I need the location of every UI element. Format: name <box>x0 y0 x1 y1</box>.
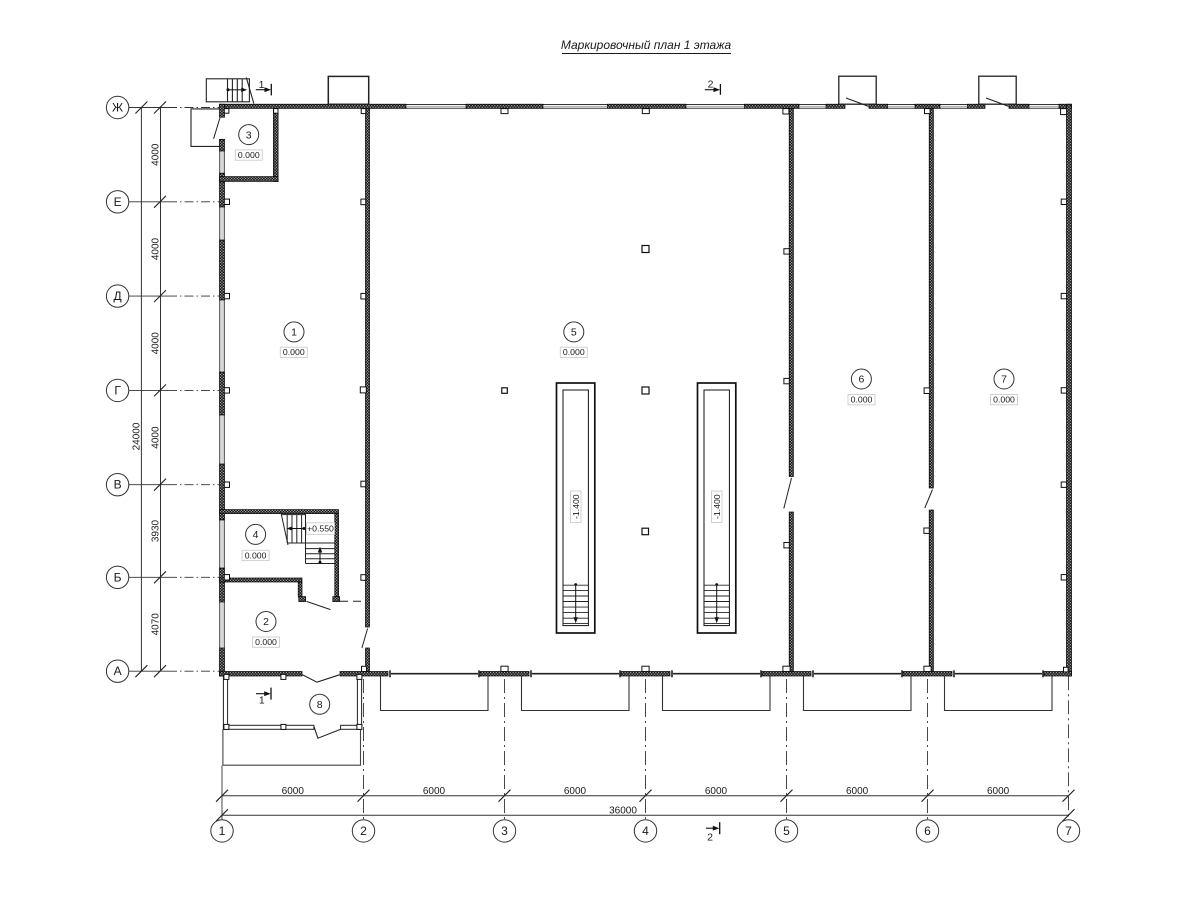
svg-text:А: А <box>114 664 122 678</box>
svg-text:0.000: 0.000 <box>283 347 305 357</box>
svg-text:2: 2 <box>360 824 367 838</box>
svg-text:0.000: 0.000 <box>993 395 1015 405</box>
svg-text:4000: 4000 <box>151 143 162 166</box>
svg-text:4000: 4000 <box>151 332 162 355</box>
svg-text:6000: 6000 <box>846 786 869 797</box>
svg-text:6000: 6000 <box>423 786 446 797</box>
svg-text:4000: 4000 <box>150 426 161 449</box>
svg-text:0.000: 0.000 <box>245 550 267 560</box>
svg-text:2: 2 <box>263 616 269 628</box>
svg-text:3: 3 <box>246 129 252 141</box>
svg-text:0.000: 0.000 <box>255 637 277 647</box>
svg-text:Ж: Ж <box>112 101 123 115</box>
svg-text:24000: 24000 <box>132 422 143 450</box>
svg-text:+0.550: +0.550 <box>307 524 334 534</box>
svg-text:3: 3 <box>501 824 508 838</box>
svg-text:3930: 3930 <box>151 519 162 542</box>
svg-text:Б: Б <box>114 570 122 584</box>
svg-text:1: 1 <box>291 327 297 339</box>
svg-text:2: 2 <box>708 78 714 90</box>
svg-text:6000: 6000 <box>705 786 728 797</box>
svg-text:4: 4 <box>642 824 649 838</box>
svg-text:4: 4 <box>253 529 259 541</box>
svg-text:7: 7 <box>1065 824 1072 838</box>
svg-text:8: 8 <box>317 699 323 711</box>
svg-text:4000: 4000 <box>151 237 162 260</box>
svg-text:5: 5 <box>783 824 790 838</box>
svg-text:7: 7 <box>1001 374 1007 386</box>
svg-text:6: 6 <box>924 824 931 838</box>
svg-text:6000: 6000 <box>987 786 1010 797</box>
svg-text:Г: Г <box>114 383 121 397</box>
svg-text:Маркировочный план 1 этажа: Маркировочный план 1 этажа <box>561 38 732 52</box>
svg-text:0.000: 0.000 <box>563 347 585 357</box>
svg-text:1: 1 <box>259 695 265 707</box>
svg-text:-1.400: -1.400 <box>571 494 581 519</box>
svg-text:Д: Д <box>114 289 122 303</box>
svg-text:0.000: 0.000 <box>851 395 873 405</box>
svg-text:6000: 6000 <box>282 786 305 797</box>
svg-text:4070: 4070 <box>151 613 162 636</box>
svg-text:5: 5 <box>571 327 577 339</box>
svg-text:0.000: 0.000 <box>238 150 260 160</box>
svg-text:1: 1 <box>259 79 265 91</box>
svg-text:В: В <box>114 478 122 492</box>
svg-text:6: 6 <box>858 374 864 386</box>
svg-text:2: 2 <box>707 832 713 844</box>
svg-text:6000: 6000 <box>564 786 587 797</box>
svg-text:1: 1 <box>219 824 226 838</box>
svg-text:-1.400: -1.400 <box>712 494 722 519</box>
svg-text:Е: Е <box>114 195 122 209</box>
svg-text:36000: 36000 <box>609 806 637 817</box>
